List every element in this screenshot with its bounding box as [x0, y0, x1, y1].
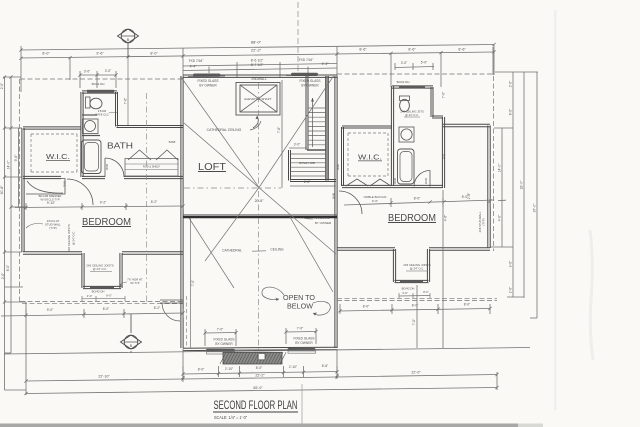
- svg-text:@ 24” O.C.: @ 24” O.C.: [410, 267, 424, 271]
- svg-text:8’-0”: 8’-0”: [423, 290, 429, 294]
- svg-text:2’-0”: 2’-0”: [508, 287, 512, 293]
- svg-text:BY OWNER: BY OWNER: [215, 342, 233, 346]
- svg-text:14’-0”: 14’-0”: [498, 164, 502, 173]
- svg-text:LOFT: LOFT: [198, 162, 226, 173]
- svg-text:8’-6”: 8’-6”: [359, 48, 367, 52]
- svg-text:2068: 2068: [424, 177, 428, 184]
- svg-text:7’6” HDR HT.: 7’6” HDR HT.: [127, 278, 143, 282]
- svg-text:8’-0”: 8’-0”: [198, 368, 204, 372]
- svg-text:FIXED GLASS: FIXED GLASS: [300, 79, 321, 83]
- svg-text:14’-0”: 14’-0”: [6, 161, 10, 170]
- svg-text:8’-0”: 8’-0”: [6, 265, 10, 271]
- svg-text:BO42 DH: BO42 DH: [92, 82, 105, 86]
- svg-text:8’-0”: 8’-0”: [150, 52, 158, 56]
- svg-text:8’-7 1/2”: 8’-7 1/2”: [251, 63, 263, 67]
- svg-text:ELEVATOR SHAFT: ELEVATOR SHAFT: [245, 97, 272, 101]
- svg-text:65’-0”: 65’-0”: [253, 386, 263, 390]
- svg-text:8’-6”: 8’-6”: [322, 364, 328, 368]
- svg-text:DOWN 18R: DOWN 18R: [299, 161, 316, 165]
- svg-text:32’-0”: 32’-0”: [519, 181, 523, 190]
- svg-text:BEDROOM: BEDROOM: [82, 217, 131, 228]
- svg-text:BATH: BATH: [107, 141, 133, 151]
- svg-text:8’-0”: 8’-0”: [508, 109, 512, 115]
- svg-text:BO/42 DH: BO/42 DH: [92, 290, 105, 294]
- svg-text:2’-0”: 2’-0”: [508, 81, 512, 87]
- svg-text:(TYP): (TYP): [49, 226, 56, 230]
- svg-text:7’-0”: 7’-0”: [191, 280, 195, 286]
- svg-text:8’-6”: 8’-6”: [408, 48, 416, 52]
- svg-text:BY OWNER: BY OWNER: [301, 84, 319, 88]
- svg-text:BEDROOM: BEDROOM: [388, 213, 436, 224]
- svg-text:7’-6”: 7’-6”: [277, 127, 281, 133]
- svg-text:3040: 3040: [332, 192, 336, 199]
- svg-text:8’-0”: 8’-0”: [464, 303, 470, 307]
- svg-text:8’-2”: 8’-2”: [154, 306, 160, 310]
- svg-text:3060: 3060: [336, 163, 340, 170]
- svg-text:2X6 STUD WALL: 2X6 STUD WALL: [478, 211, 482, 232]
- svg-text:W/ TYP: W/ TYP: [130, 281, 139, 285]
- svg-text:BELOW: BELOW: [287, 302, 313, 311]
- svg-text:9’-0”: 9’-0”: [47, 308, 53, 312]
- svg-text:@ 24” O.C.: @ 24” O.C.: [93, 267, 107, 271]
- svg-text:(TYP): (TYP): [482, 218, 486, 225]
- svg-text:4’-4”: 4’-4”: [190, 65, 197, 69]
- svg-text:HANDRAIL: HANDRAIL: [314, 216, 330, 220]
- svg-text:W/6’8 CLG: W/6’8 CLG: [95, 112, 109, 116]
- svg-text:FIXED GLASS: FIXED GLASS: [198, 79, 219, 83]
- svg-text:BD’CAB DRESSER: BD’CAB DRESSER: [39, 194, 62, 198]
- svg-text:FXD 7/16”: FXD 7/16”: [299, 58, 314, 62]
- svg-text:22’-2”: 22’-2”: [255, 374, 265, 378]
- svg-text:30’-8”: 30’-8”: [0, 186, 4, 195]
- svg-text:8’-0”: 8’-0”: [462, 195, 468, 199]
- svg-text:9’-2”: 9’-2”: [100, 201, 106, 205]
- svg-text:8’-6”: 8’-6”: [458, 48, 466, 52]
- svg-text:@ 24” O.C.: @ 24” O.C.: [72, 231, 76, 245]
- svg-text:3068: 3068: [393, 177, 397, 184]
- svg-text:37’-0”: 37’-0”: [532, 204, 536, 213]
- svg-text:4’-4”: 4’-4”: [322, 62, 329, 66]
- svg-text:22’-10”: 22’-10”: [98, 375, 110, 379]
- svg-text:4’-0”: 4’-0”: [498, 215, 502, 221]
- svg-text:2’-0”: 2’-0”: [1, 273, 5, 279]
- svg-text:9’-10”: 9’-10”: [47, 201, 55, 205]
- svg-text:9’-6”: 9’-6”: [96, 52, 104, 56]
- svg-text:2X6 CEILING JSTS: 2X6 CEILING JSTS: [400, 110, 424, 114]
- svg-text:8’-0”: 8’-0”: [363, 305, 369, 309]
- svg-text:@ 24” O.C.: @ 24” O.C.: [405, 113, 419, 117]
- svg-text:7’-6”: 7’-6”: [124, 98, 128, 104]
- svg-text:3’-0”: 3’-0”: [105, 69, 111, 73]
- svg-text:8’-6 1/2”: 8’-6 1/2”: [251, 59, 263, 63]
- svg-text:2’-10”: 2’-10”: [225, 367, 233, 371]
- svg-text:SCALE: 1/4” = 1’-0”: SCALE: 1/4” = 1’-0”: [214, 415, 248, 420]
- svg-text:8’-0”: 8’-0”: [106, 293, 112, 297]
- svg-text:2NDWALL: 2NDWALL: [251, 77, 267, 81]
- svg-text:7’-0”: 7’-0”: [412, 319, 416, 325]
- svg-text:22’-0”: 22’-0”: [411, 371, 421, 375]
- svg-text:W.I.C.: W.I.C.: [358, 155, 382, 162]
- svg-text:7’-0”: 7’-0”: [297, 326, 303, 330]
- svg-text:3’-0”: 3’-0”: [87, 294, 93, 298]
- svg-text:FIXED GLASS: FIXED GLASS: [294, 337, 315, 341]
- svg-text:CATHEDRAL: CATHEDRAL: [222, 249, 242, 253]
- svg-text:3’-0”: 3’-0”: [402, 291, 408, 295]
- svg-text:3’-0”: 3’-0”: [294, 143, 300, 147]
- svg-text:CATHEDRAL CEILING: CATHEDRAL CEILING: [207, 128, 242, 132]
- svg-text:9’-0”: 9’-0”: [508, 261, 512, 267]
- svg-text:W.I.C.: W.I.C.: [46, 154, 70, 161]
- svg-text:2068: 2068: [63, 180, 67, 187]
- svg-text:8’-2”: 8’-2”: [151, 200, 157, 204]
- svg-text:6’-6”: 6’-6”: [304, 180, 310, 184]
- svg-text:7’-0”: 7’-0”: [442, 92, 446, 98]
- svg-text:3’-0”: 3’-0”: [401, 61, 407, 65]
- svg-text:3068: 3068: [105, 163, 109, 170]
- svg-text:5068: 5068: [169, 140, 176, 144]
- svg-text:CEILING: CEILING: [270, 248, 284, 252]
- svg-text:8’-0”: 8’-0”: [103, 307, 109, 311]
- svg-text:FIXED GLASS: FIXED GLASS: [214, 338, 235, 342]
- svg-text:4’-6”: 4’-6”: [444, 215, 448, 221]
- svg-text:8’-0”: 8’-0”: [42, 52, 50, 56]
- svg-text:BY OWNER: BY OWNER: [199, 84, 217, 88]
- svg-text:2’-0”: 2’-0”: [0, 83, 4, 89]
- svg-text:3’-0”: 3’-0”: [84, 70, 90, 74]
- svg-text:8’-0”: 8’-0”: [256, 366, 262, 370]
- svg-text:22’-2”: 22’-2”: [251, 48, 262, 53]
- svg-text:BY OWNER: BY OWNER: [295, 341, 313, 345]
- svg-text:6’-0”: 6’-0”: [372, 199, 378, 203]
- svg-text:9’-6”: 9’-6”: [14, 155, 18, 162]
- svg-text:5’-0”: 5’-0”: [421, 61, 427, 65]
- svg-text:8’-0”: 8’-0”: [414, 197, 420, 201]
- svg-text:SECOND FLOOR PLAN: SECOND FLOOR PLAN: [214, 400, 298, 412]
- svg-text:BY OWNER: BY OWNER: [315, 221, 332, 225]
- svg-text:20’-8”: 20’-8”: [255, 199, 264, 203]
- svg-text:ROD & SHELF: ROD & SHELF: [143, 165, 161, 169]
- svg-text:FXD 7/16”: FXD 7/16”: [189, 59, 204, 63]
- svg-text:7’-0”: 7’-0”: [217, 327, 223, 331]
- svg-text:88’-0”: 88’-0”: [251, 40, 262, 45]
- svg-text:BO42 DH: BO42 DH: [397, 80, 410, 84]
- svg-text:2’-10”: 2’-10”: [289, 365, 297, 369]
- svg-text:2X6 CEILING JOISTS: 2X6 CEILING JOISTS: [67, 224, 71, 252]
